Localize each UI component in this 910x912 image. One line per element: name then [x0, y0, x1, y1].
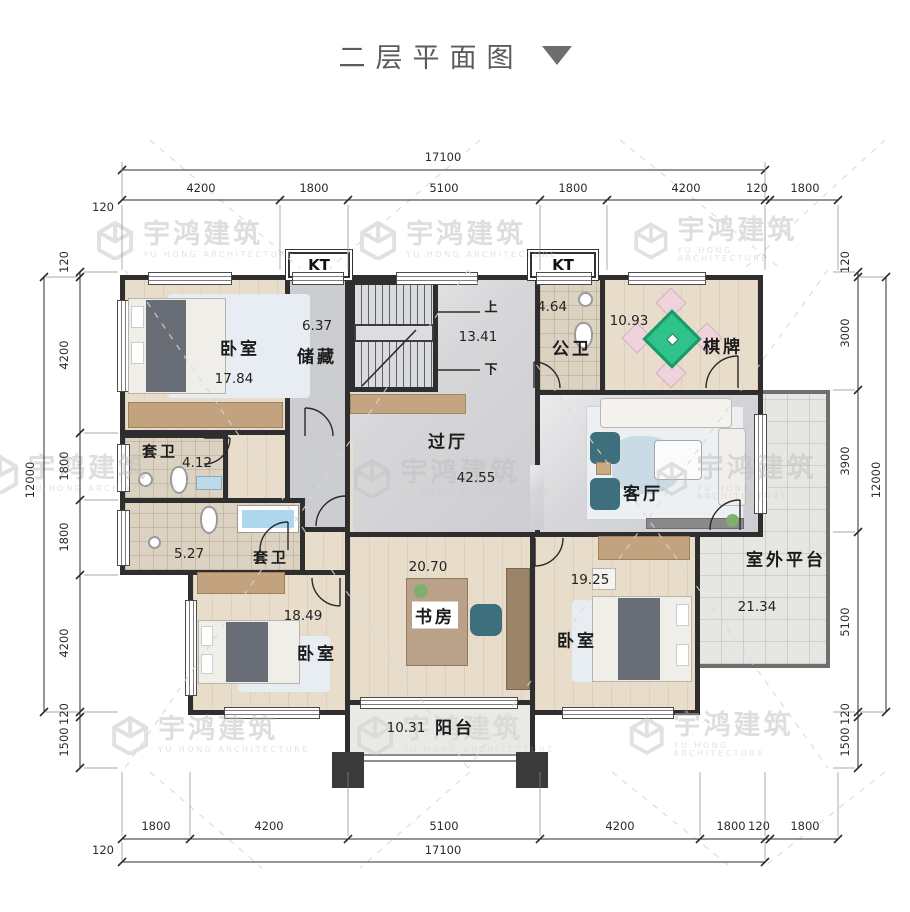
watermark-name: 宇鸿建筑 — [143, 221, 295, 248]
label-bedroom-tl: 卧室 — [220, 335, 260, 360]
window-bedroom-bl-left — [185, 600, 197, 696]
watermark-cube-icon — [0, 454, 20, 494]
wardrobe-bedroom-bl — [197, 572, 285, 594]
chaise-living — [718, 428, 746, 506]
area-storage: 6.37 — [302, 318, 332, 334]
section-marker-icon — [542, 46, 572, 65]
area-public-bath: 4.64 — [537, 299, 567, 315]
cabinet-study — [506, 568, 530, 690]
dim-left-1: 4200 — [57, 340, 71, 369]
dim-bottom-2: 5100 — [429, 819, 458, 833]
pillow — [201, 654, 213, 674]
dim-right-0: 120 — [838, 251, 852, 273]
dim-right-total: 12000 — [869, 462, 883, 499]
dim-right-5: 1500 — [838, 727, 852, 756]
bathtub-ensuite-2 — [238, 506, 298, 532]
watermark-subtitle: YU HONG ARCHITECTURE — [143, 251, 295, 259]
window-chess-top — [628, 272, 706, 285]
watermark-name: 宇鸿建筑 — [677, 217, 817, 244]
blanket-bedroom-tl — [146, 300, 186, 392]
watermark-subtitle: YU HONG ARCHITECTURE — [674, 742, 816, 758]
floor-plan-canvas: 二层平面图 KT KT — [0, 0, 910, 912]
label-hallway: 过厅 — [428, 428, 468, 453]
coffee-table-living — [654, 440, 702, 480]
area-bedroom-bl: 18.49 — [284, 608, 323, 624]
area-bedroom-tl: 17.84 — [215, 371, 254, 387]
dim-top-4: 4200 — [671, 181, 700, 195]
dim-left-5: 120 — [57, 703, 71, 725]
area-bedroom-br: 19.25 — [571, 572, 610, 588]
balcony-column-left — [332, 752, 364, 788]
stairs-up-label: 上 — [484, 297, 497, 316]
watermark: 宇鸿建筑YU HONG ARCHITECTURE — [358, 220, 558, 260]
sink-public-bath — [578, 292, 593, 307]
watermark-cube-icon — [633, 220, 670, 260]
watermark-name: 宇鸿建筑 — [406, 221, 558, 248]
window-kt-left — [292, 272, 344, 285]
balcony-column-right — [516, 752, 548, 788]
hall-living-opening — [530, 465, 544, 530]
plant-study — [414, 584, 428, 598]
dim-top-2: 5100 — [429, 181, 458, 195]
window-bedroom-tl-top — [148, 272, 232, 285]
chair-study — [470, 604, 502, 636]
label-living: 客厅 — [623, 480, 663, 505]
stairs-down-label: 下 — [484, 359, 497, 378]
blanket-bedroom-br — [618, 598, 660, 680]
dim-left-6: 1500 — [57, 727, 71, 756]
watermark-name: 宇鸿建筑 — [674, 712, 816, 739]
dim-bottom-total: 17100 — [425, 843, 462, 857]
balcony-rail — [352, 754, 528, 762]
watermark: 宇鸿建筑YU HONG ARCHITECTURE — [110, 715, 310, 755]
toilet-ensuite-2 — [200, 506, 218, 534]
dim-top-1: 1800 — [299, 181, 328, 195]
sink-ensuite-1 — [138, 472, 153, 487]
wardrobe-bedroom-br — [598, 536, 690, 560]
dim-bottom-0: 1800 — [141, 819, 170, 833]
armchair-living-1 — [590, 432, 620, 464]
dim-left-0: 120 — [57, 251, 71, 273]
title-bar: 二层平面图 — [0, 36, 910, 75]
basin-ensuite-1 — [196, 476, 222, 490]
watermark: 宇鸿建筑YU HONG ARCHITECTURE — [633, 217, 818, 263]
label-chess: 棋牌 — [703, 333, 743, 358]
dim-top-0: 4200 — [186, 181, 215, 195]
window-bedroom-br-bottom — [562, 707, 674, 719]
dim-left-2: 1800 — [57, 451, 71, 480]
dim-bottom-3: 4200 — [605, 819, 634, 833]
area-chess: 10.93 — [610, 313, 649, 329]
label-ensuite-1: 套卫 — [142, 441, 178, 462]
dim-bottom-5: 120 — [748, 819, 770, 833]
watermark-cube-icon — [628, 715, 666, 755]
label-balcony: 阳台 — [435, 714, 475, 739]
dim-right-3: 5100 — [838, 607, 852, 636]
label-bedroom-bl: 卧室 — [297, 640, 337, 665]
blanket-bedroom-bl — [226, 622, 268, 682]
window-ensuite1-left — [117, 444, 130, 492]
window-study-balcony — [360, 697, 518, 709]
shower-drain-ensuite-2 — [148, 536, 161, 549]
label-ensuite-2: 套卫 — [253, 547, 289, 568]
dim-bottom-6: 1800 — [790, 819, 819, 833]
sofa-living — [600, 398, 732, 428]
window-stairs-top — [396, 272, 478, 285]
wardrobe-bedroom-tl — [128, 402, 283, 428]
watermark-subtitle: YU HONG ARCHITECTURE — [677, 247, 817, 263]
label-bedroom-br: 卧室 — [557, 627, 597, 652]
dim-top-total: 17100 — [425, 150, 462, 164]
window-kt-right — [536, 272, 592, 285]
dim-left-4: 4200 — [57, 628, 71, 657]
pillow — [201, 626, 213, 646]
pillow — [131, 342, 144, 364]
dim-top-5: 120 — [746, 181, 768, 195]
plant-living — [726, 514, 739, 527]
area-study: 20.70 — [409, 559, 448, 575]
dim-left-total: 12000 — [23, 462, 37, 499]
dim-right-1: 3000 — [838, 318, 852, 347]
watermark-subtitle: YU HONG ARCHITECTURE — [158, 746, 310, 754]
hall-cabinet — [350, 394, 466, 414]
area-ensuite-1: 4.12 — [182, 455, 212, 471]
page-title: 二层平面图 — [339, 36, 524, 75]
dim-top-wall: 120 — [92, 200, 114, 214]
window-ensuite2-left — [117, 510, 130, 566]
label-study: 书房 — [412, 602, 458, 629]
label-storage: 储藏 — [297, 343, 337, 368]
area-hallway: 42.55 — [457, 470, 496, 486]
pillow — [676, 604, 689, 626]
watermark-name: 宇鸿建筑 — [158, 716, 310, 743]
pillow — [676, 644, 689, 666]
watermark: 宇鸿建筑YU HONG ARCHITECTURE — [95, 220, 295, 260]
dim-right-2: 3900 — [838, 446, 852, 475]
dim-top-3: 1800 — [558, 181, 587, 195]
pillow — [131, 306, 144, 328]
dim-right-4: 120 — [838, 703, 852, 725]
dim-top-6: 1800 — [790, 181, 819, 195]
dim-left-3: 1800 — [57, 522, 71, 551]
area-terrace: 21.34 — [738, 599, 777, 615]
dim-bottom-wall: 120 — [92, 843, 114, 857]
stairs-landing-rail — [354, 324, 434, 342]
area-ensuite-2: 5.27 — [174, 546, 204, 562]
label-terrace: 室外平台 — [746, 546, 826, 571]
label-public-bath: 公卫 — [552, 335, 592, 360]
watermark-cube-icon — [110, 715, 150, 755]
side-table-living — [596, 462, 611, 475]
area-stairs: 13.41 — [459, 329, 498, 345]
window-living-right — [754, 414, 767, 514]
watermark-cube-icon — [95, 220, 135, 260]
area-balcony: 10.31 — [387, 720, 426, 736]
dim-bottom-1: 4200 — [254, 819, 283, 833]
armchair-living-2 — [590, 478, 620, 510]
window-bedroom-bl-bottom — [224, 707, 320, 719]
watermark-cube-icon — [358, 220, 398, 260]
dim-bottom-4: 1800 — [716, 819, 745, 833]
